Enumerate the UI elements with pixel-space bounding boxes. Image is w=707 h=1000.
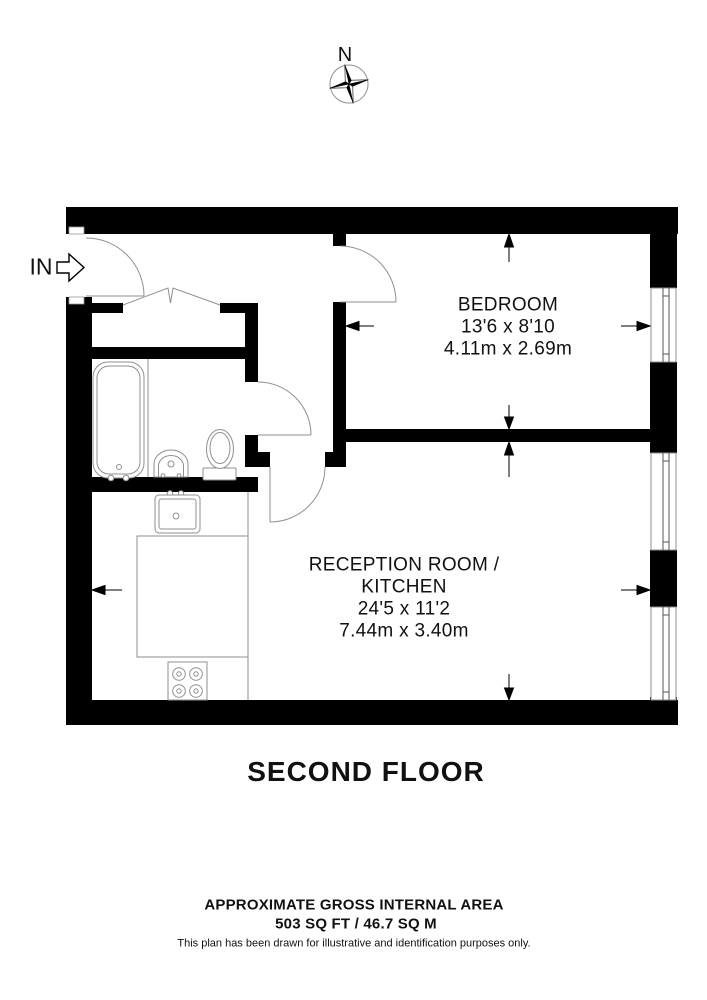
- floor-title: SECOND FLOOR: [247, 758, 485, 786]
- hob-stove: [168, 662, 207, 700]
- bedroom-dimensions-imperial: 13'6 x 8'10: [461, 318, 555, 337]
- bathroom-fixtures: [93, 359, 236, 481]
- disclaimer-text: This plan has been drawn for illustrativ…: [177, 939, 530, 950]
- bedroom-height-arrow-bottom: [505, 405, 514, 429]
- bedroom-width-arrow-left: [346, 322, 374, 331]
- bathtub: [93, 362, 144, 481]
- reception-window-lower: [651, 607, 676, 700]
- area-value: 503 SQ FT / 46.7 SQ M: [275, 917, 437, 932]
- north-label: N: [338, 45, 352, 65]
- reception-height-arrow-top: [505, 442, 514, 477]
- toilet: [203, 430, 236, 481]
- floorplan-page: N IN BEDROOM 13'6 x 8'10 4.11m x 2.69m R…: [0, 0, 707, 1000]
- entry-arrow-icon: [57, 254, 84, 281]
- entrance-label: IN: [30, 256, 53, 279]
- floorplan-canvas: [0, 0, 707, 1000]
- reception-name-line1: RECEPTION ROOM /: [309, 556, 500, 575]
- reception-dimensions-metric: 7.44m x 3.40m: [339, 622, 469, 641]
- windows: [651, 288, 676, 700]
- reception-window-upper: [651, 453, 676, 550]
- bedroom-height-arrow-top: [505, 234, 514, 262]
- compass-rose-icon: [325, 60, 372, 107]
- reception-door-swing: [270, 467, 325, 522]
- bedroom-name: BEDROOM: [458, 296, 558, 315]
- kitchen-fixtures: [137, 491, 248, 700]
- reception-name-line2: KITCHEN: [361, 578, 447, 597]
- bedroom-window: [651, 288, 676, 362]
- area-heading: APPROXIMATE GROSS INTERNAL AREA: [204, 898, 503, 913]
- reception-dimensions-imperial: 24'5 x 11'2: [358, 600, 451, 619]
- kitchen-sink: [155, 491, 200, 533]
- bedroom-door-swing: [340, 246, 396, 302]
- reception-width-arrow-left: [92, 586, 122, 595]
- reception-height-arrow-bottom: [505, 674, 514, 700]
- bedroom-width-arrow-right: [621, 322, 650, 331]
- wash-basin: [154, 450, 188, 477]
- bedroom-dimensions-metric: 4.11m x 2.69m: [444, 340, 572, 359]
- bathroom-door-swing: [258, 382, 311, 435]
- reception-width-arrow-right: [621, 586, 650, 595]
